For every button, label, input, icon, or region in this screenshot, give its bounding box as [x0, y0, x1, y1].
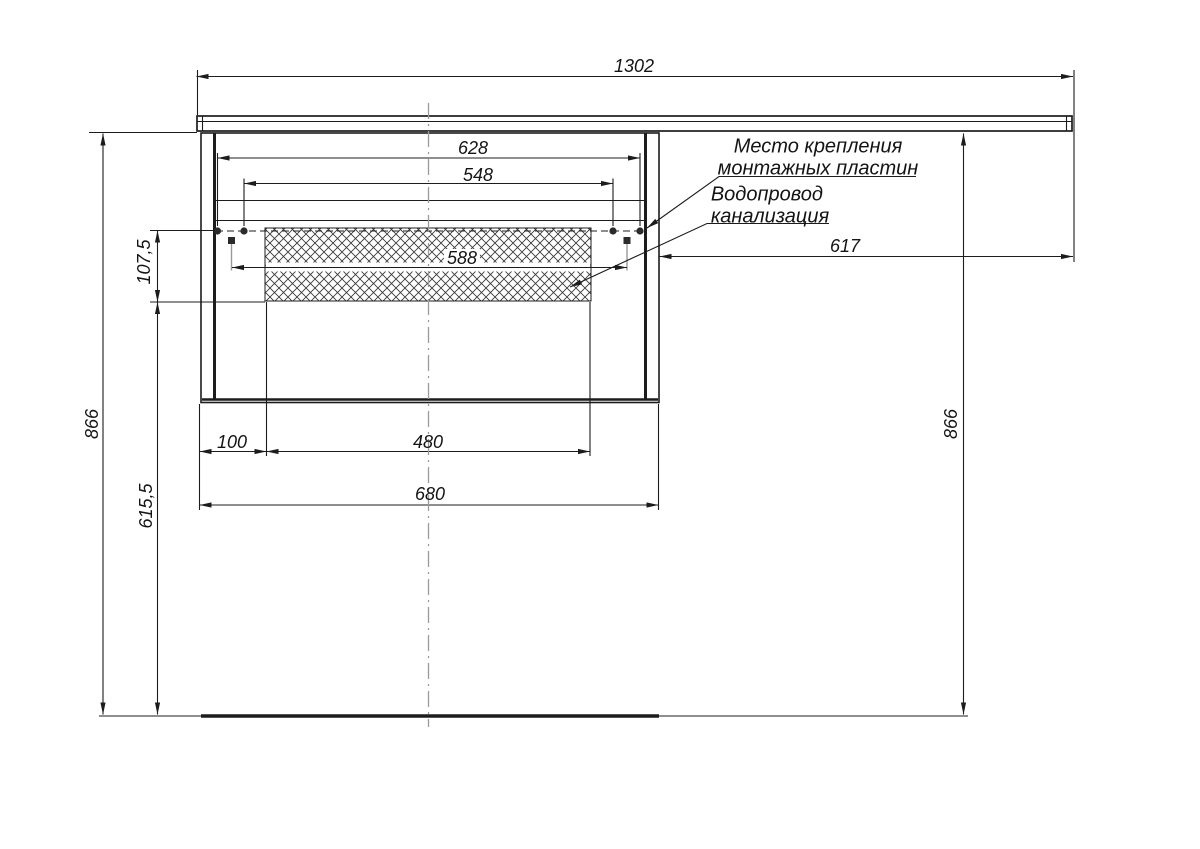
dim-label-480: 480	[413, 433, 443, 451]
dim-label-680: 680	[415, 485, 445, 503]
note-mounting-plates-line2: монтажных пластин	[718, 158, 919, 180]
dim-label-866-left: 866	[83, 409, 101, 439]
note-plumbing-line1: Водопровод	[711, 184, 829, 206]
note-plumbing-line2: канализация	[711, 206, 829, 228]
note-mounting-plates-line1: Место крепления	[718, 136, 919, 158]
fixing-point	[609, 227, 616, 234]
dim-label-617: 617	[830, 237, 860, 255]
drawing-linework	[0, 0, 1200, 849]
dim-label-628: 628	[458, 139, 488, 157]
dim-label-100: 100	[217, 433, 247, 451]
note-mounting-plates: Место крепления монтажных пластин	[718, 136, 919, 179]
technical-drawing: 1302 628 548 588 617 107,5 866 615,5 866…	[0, 0, 1200, 849]
fixing-square	[624, 237, 631, 244]
dim-866-left	[89, 133, 197, 715]
dim-label-107-5: 107,5	[135, 239, 153, 284]
fixing-point	[636, 227, 643, 234]
dim-label-588: 588	[444, 249, 480, 267]
note-plumbing: Водопровод канализация	[711, 184, 829, 227]
dim-label-1302: 1302	[614, 57, 654, 75]
fixing-square	[228, 237, 235, 244]
dim-label-866-right: 866	[942, 409, 960, 439]
fixing-point	[240, 227, 247, 234]
dim-label-548: 548	[463, 166, 493, 184]
dim-label-615-5: 615,5	[137, 483, 155, 528]
countertop	[197, 116, 1072, 131]
